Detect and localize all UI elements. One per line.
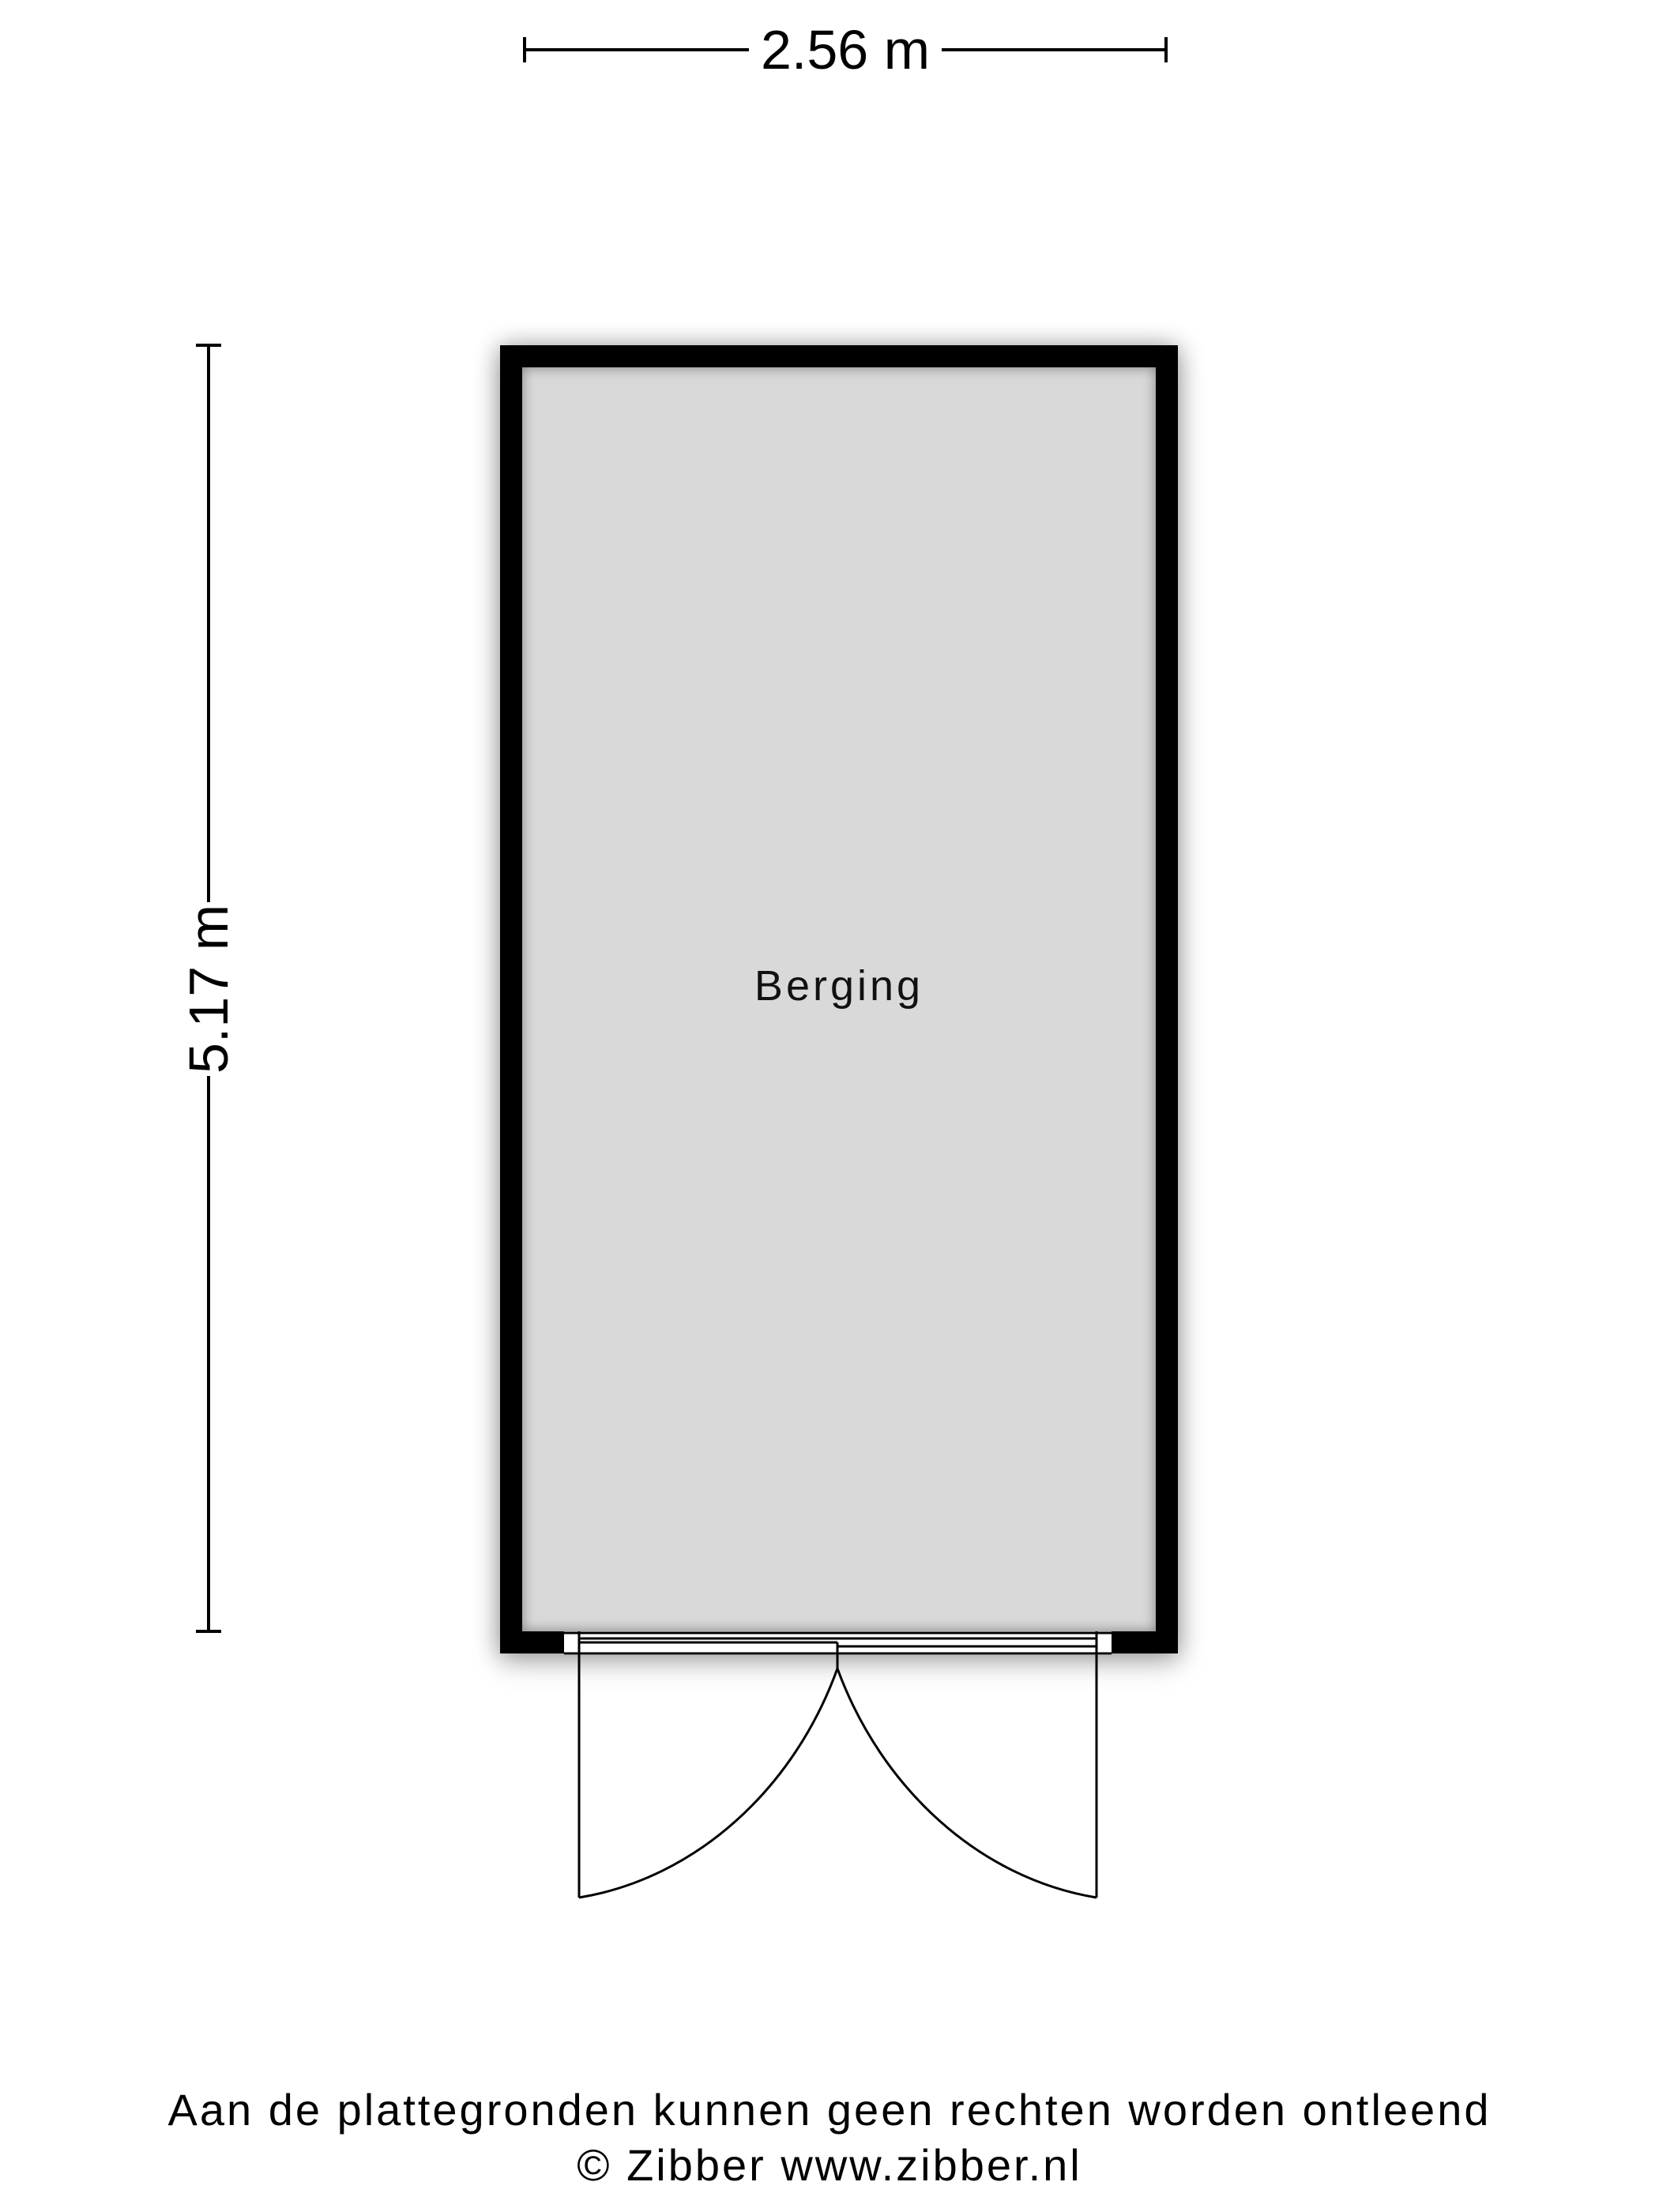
door-symbol [0, 0, 1659, 2212]
door-swing-arc-left [579, 1668, 837, 1898]
footer-disclaimer: Aan de plattegronden kunnen geen rechten… [0, 2084, 1659, 2135]
floorplan-canvas: 2.56 m 5.17 m Berging [0, 0, 1659, 2212]
door-swing-arc-right [837, 1668, 1097, 1898]
footer-copyright: © Zibber www.zibber.nl [0, 2139, 1659, 2191]
